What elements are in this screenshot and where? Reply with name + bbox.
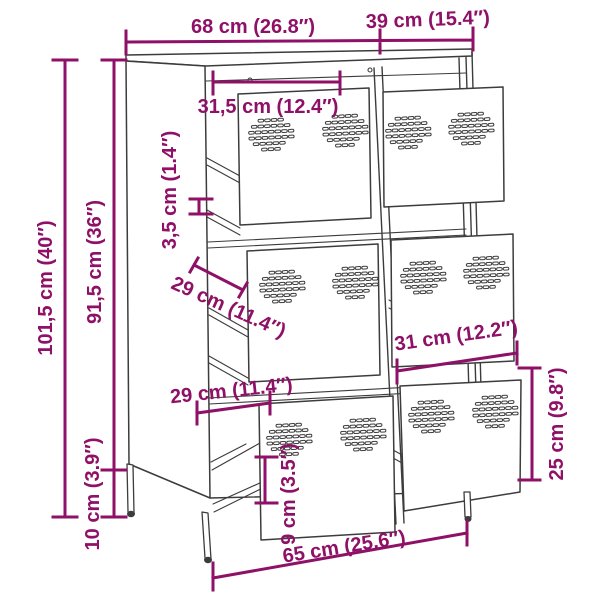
dim-drawer-front-height-label: 25 cm (9.8″) (546, 368, 568, 481)
dim-total-height-label: 101,5 cm (40″) (35, 220, 57, 355)
dim-drawer-width-left-label: 31,5 cm (12.4″) (198, 96, 339, 118)
back-rail (206, 73, 466, 81)
dim-drawer-inner-height-label: 9 cm (3.5″) (278, 443, 300, 545)
left-side-panel (126, 61, 210, 498)
cabinet-drawing (126, 49, 521, 563)
dim-drawer-front-height-line (519, 368, 540, 480)
leg-foot (127, 511, 135, 517)
cabinet-top-panel (126, 49, 472, 66)
leg-front-left (202, 512, 211, 559)
drawer-front-bottom-right (400, 380, 521, 511)
leg-foot (204, 557, 212, 563)
dim-top-depth-label: 39 cm (15.4″) (365, 7, 490, 33)
cabinet-dimension-diagram: 68 cm (26.8″) 39 cm (15.4″) 101,5 cm (40… (0, 0, 600, 600)
diagram-canvas: 68 cm (26.8″) 39 cm (15.4″) 101,5 cm (40… (0, 0, 600, 600)
screw-hole (368, 68, 372, 72)
dim-shelf-gap-label: 3,5 cm (1.4″) (159, 131, 181, 250)
dim-body-height-label: 91,5 cm (36″) (84, 200, 106, 324)
dim-top-width-label: 68 cm (26.8″) (191, 16, 315, 38)
leg-back-left (127, 464, 134, 513)
dim-leg-height-label: 10 cm (3.9″) (82, 438, 104, 551)
leg-front-right (464, 492, 471, 517)
